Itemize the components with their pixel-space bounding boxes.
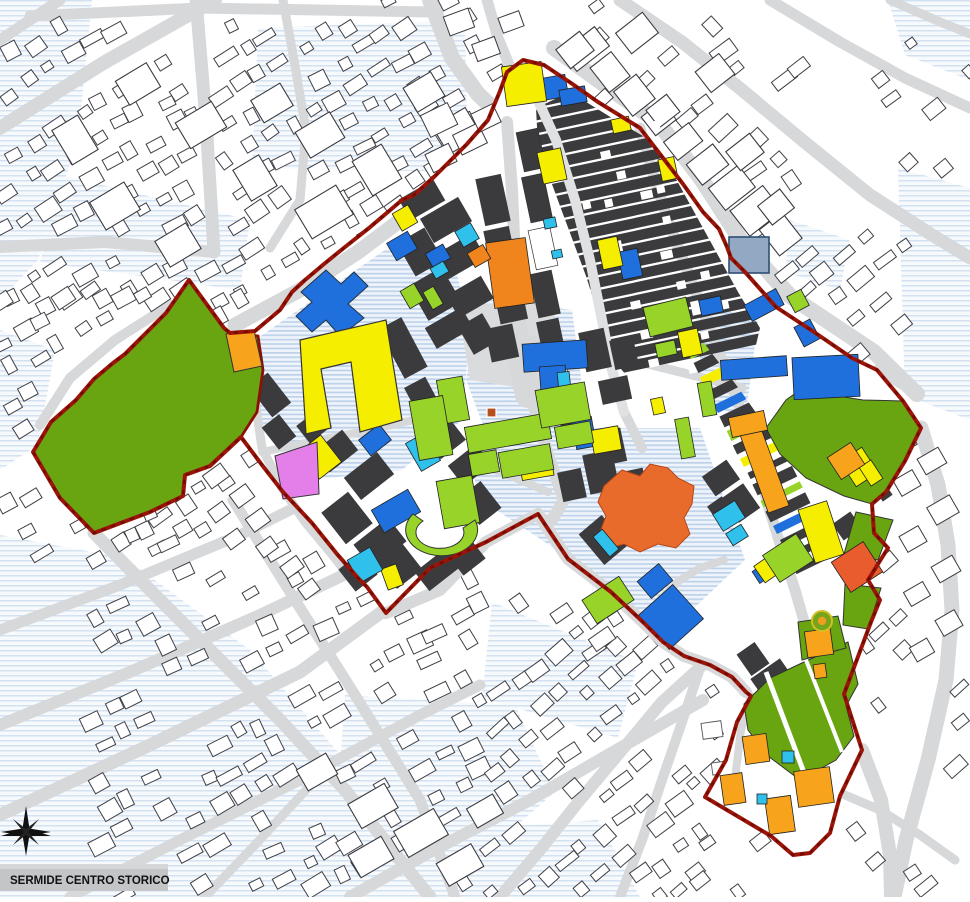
svg-text:SERMIDE CENTRO STORICO: SERMIDE CENTRO STORICO [10, 875, 170, 887]
